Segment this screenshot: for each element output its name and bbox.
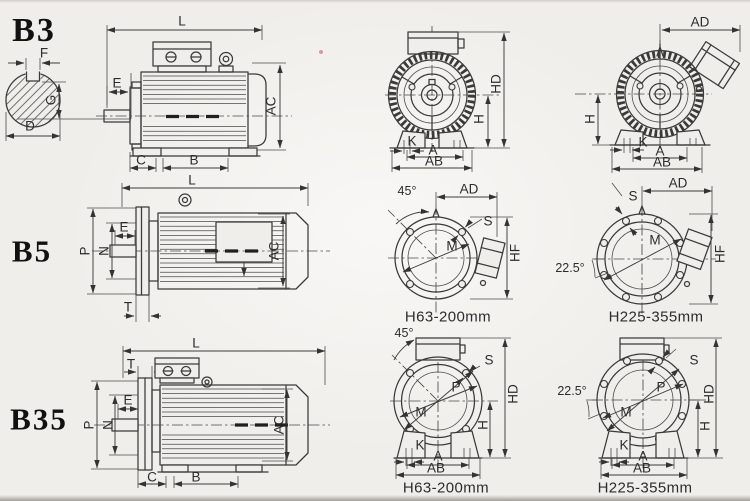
dim-label-b35r-p: P — [656, 380, 665, 394]
dim-label-b5-e: E — [119, 220, 128, 234]
caption-b5-small-frames: H63-200mm — [405, 310, 491, 325]
dim-label-b5m-hf: HF — [508, 244, 522, 262]
dim-label-b35m-s: S — [484, 353, 493, 367]
dim-label-b5-ac: AC — [267, 242, 281, 261]
row-code-b3: B3 — [12, 14, 56, 48]
dim-label-b3f-h: H — [472, 114, 486, 124]
dim-label-shaft-f: F — [40, 46, 48, 60]
dim-label-b3r-ad: AD — [691, 15, 710, 29]
dim-label-b5-t: T — [124, 300, 132, 314]
dim-label-b35-b: B — [191, 470, 200, 484]
dim-label-b3f-k: K — [407, 134, 416, 148]
dim-label-b35r-ab: AB — [633, 461, 651, 475]
dim-label-b3r-h: H — [583, 114, 597, 124]
dim-label-b35m-hd: HD — [506, 384, 520, 404]
dim-label-b35r-hd: HD — [702, 384, 716, 404]
caption-b35-large-frames: H225-355mm — [598, 481, 693, 496]
dim-label-b3-b: B — [189, 153, 198, 167]
dim-label-b35-e: E — [123, 393, 132, 407]
dim-label-shaft-d: D — [25, 119, 35, 133]
row-code-b5: B5 — [12, 236, 52, 267]
dim-label-b5m-s: S — [483, 214, 492, 228]
dim-label-b3f-hd: HD — [489, 74, 503, 94]
dim-label-b35r-h: H — [698, 421, 712, 431]
angle-label-b35m-45: 45° — [395, 327, 414, 340]
dim-label-b35m-p: P — [451, 380, 460, 394]
dim-label-b5r-m: M — [649, 233, 660, 247]
dim-label-b5-p: P — [78, 246, 92, 255]
dim-label-b35r-s: S — [689, 353, 698, 367]
dim-label-b5m-m: M — [446, 239, 457, 253]
dim-label-b35m-m: M — [415, 405, 426, 419]
caption-b5-large-frames: H225-355mm — [609, 310, 704, 325]
dim-label-b3-e: E — [112, 76, 121, 90]
dim-label-b3-l: L — [178, 14, 186, 28]
dim-label-b5r-hf: HF — [713, 245, 727, 263]
scan-artifact-dot — [319, 50, 323, 54]
angle-label-b5r-225: 22.5° — [555, 262, 584, 275]
b3-front-view-top-box — [385, 26, 510, 172]
scan-edge-top — [0, 0, 750, 3]
angle-label-b5m-45: 45° — [398, 185, 417, 198]
dim-label-b35m-h: H — [476, 420, 490, 430]
dim-label-b3r-k: K — [638, 135, 647, 149]
dim-label-b5-n: N — [97, 246, 111, 256]
dim-label-b35m-k: K — [415, 438, 424, 452]
dim-label-b5r-s: S — [628, 189, 637, 203]
dim-label-b3-ac: AC — [264, 97, 278, 116]
b5-flange-view-large — [592, 183, 718, 315]
b35-front-view-large — [586, 338, 723, 479]
row-code-b35: B35 — [10, 404, 68, 435]
scan-edge-bottom — [0, 495, 750, 501]
dim-label-b35-t: T — [127, 357, 135, 371]
dim-label-b35-c: C — [147, 470, 157, 484]
dim-label-b3-c: C — [136, 153, 146, 167]
dim-label-b3f-ab: AB — [425, 154, 443, 168]
dim-label-b35r-k: K — [619, 438, 628, 452]
dim-label-b35-l: L — [192, 336, 200, 350]
dim-label-b3r-ab: AB — [653, 155, 671, 169]
dim-label-b35-ac: AC — [272, 416, 286, 435]
dim-label-b5m-ad: AD — [460, 182, 479, 196]
dim-label-b35r-m: M — [620, 405, 631, 419]
motor-mounting-dimension-diagram: B3 F G D L E AC C B HD H K A AB AD H K A… — [0, 0, 750, 501]
dim-label-shaft-g: G — [44, 95, 58, 106]
angle-label-b35r-225: 22.5° — [557, 385, 586, 398]
dim-label-b5-l: L — [188, 173, 196, 187]
dim-label-b35-n: N — [101, 420, 115, 430]
caption-b35-small-frames: H63-200mm — [403, 481, 489, 496]
dim-label-b35-p: P — [82, 420, 96, 429]
dim-label-b35m-ab: AB — [427, 461, 445, 475]
dim-label-b5r-ad: AD — [669, 176, 688, 190]
